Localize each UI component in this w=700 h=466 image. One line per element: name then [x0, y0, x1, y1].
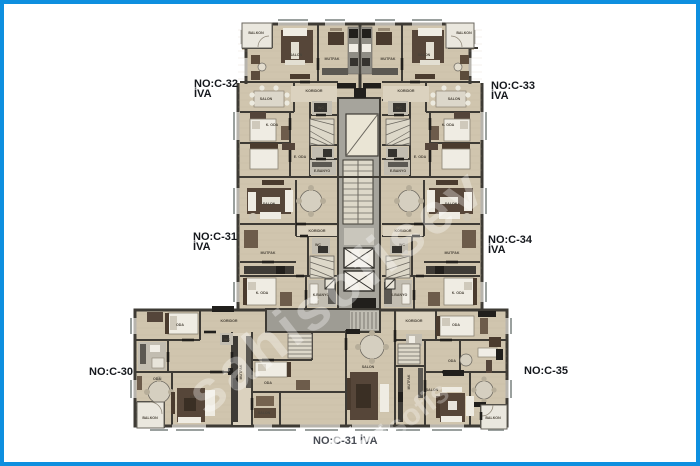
- svg-text:İVA: İVA: [194, 87, 212, 100]
- svg-text:SALON: SALON: [362, 365, 375, 369]
- svg-text:WC: WC: [396, 106, 402, 110]
- svg-text:İVA: İVA: [488, 243, 506, 256]
- svg-text:MUTFAK: MUTFAK: [325, 57, 340, 61]
- svg-text:WC: WC: [315, 243, 321, 247]
- svg-text:K. ODA: K. ODA: [442, 123, 455, 127]
- svg-text:ODA: ODA: [452, 323, 460, 327]
- svg-text:KORIDOR: KORIDOR: [306, 89, 323, 93]
- svg-text:E. ODA: E. ODA: [294, 155, 307, 159]
- svg-text:BALKON: BALKON: [485, 416, 501, 420]
- svg-text:MUTFAK: MUTFAK: [445, 251, 460, 255]
- svg-text:SALON: SALON: [418, 53, 431, 57]
- svg-text:K. ODA: K. ODA: [256, 291, 269, 295]
- svg-text:E.BANYO: E.BANYO: [314, 169, 331, 173]
- svg-text:SALON: SALON: [290, 53, 303, 57]
- svg-text:KORIDOR: KORIDOR: [398, 89, 415, 93]
- svg-text:MUTFAK: MUTFAK: [407, 374, 411, 389]
- svg-text:ODA: ODA: [448, 359, 456, 363]
- svg-text:ODA: ODA: [176, 323, 184, 327]
- svg-text:BALKON: BALKON: [456, 31, 472, 35]
- svg-text:MUTFAK: MUTFAK: [261, 251, 276, 255]
- svg-text:SALON: SALON: [263, 202, 276, 206]
- svg-text:SALON: SALON: [258, 411, 271, 415]
- svg-text:KORIDOR: KORIDOR: [221, 319, 238, 323]
- svg-text:WC: WC: [318, 106, 324, 110]
- svg-text:SALON: SALON: [260, 97, 273, 101]
- svg-text:NO:C-30: NO:C-30: [89, 366, 133, 378]
- svg-text:KORIDOR: KORIDOR: [406, 319, 423, 323]
- svg-text:K. ODA: K. ODA: [266, 123, 279, 127]
- svg-text:BALKON: BALKON: [248, 31, 264, 35]
- svg-text:NO:C-35: NO:C-35: [524, 365, 568, 377]
- svg-text:K.BANYO: K.BANYO: [391, 293, 408, 297]
- svg-text:KORIDOR: KORIDOR: [309, 229, 326, 233]
- svg-text:E. ODA: E. ODA: [414, 155, 427, 159]
- svg-text:K. ODA: K. ODA: [452, 291, 465, 295]
- svg-text:İVA: İVA: [491, 89, 509, 102]
- svg-text:SALON: SALON: [448, 97, 461, 101]
- svg-text:MUTFAK: MUTFAK: [381, 57, 396, 61]
- svg-text:ODA: ODA: [153, 377, 161, 381]
- svg-text:İVA: İVA: [193, 240, 211, 253]
- svg-text:BALKON: BALKON: [142, 416, 158, 420]
- svg-text:E.BANYO: E.BANYO: [390, 169, 407, 173]
